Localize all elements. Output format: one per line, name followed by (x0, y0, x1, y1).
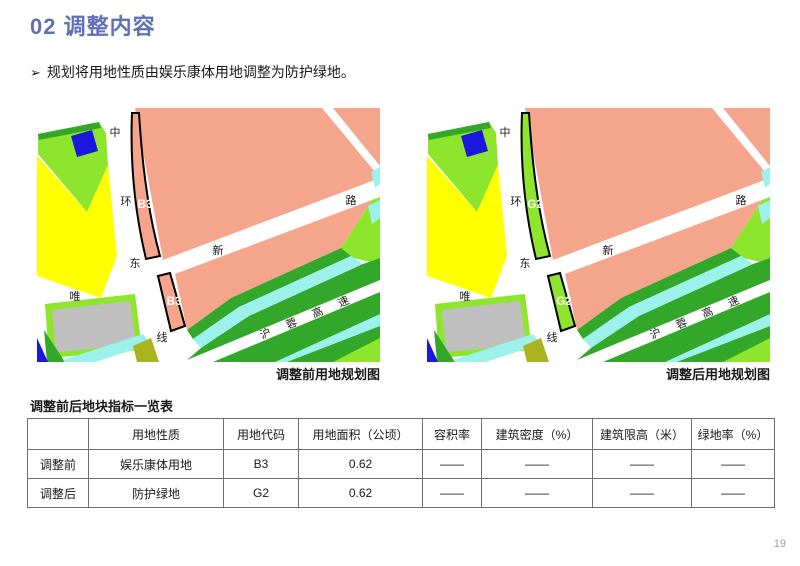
table-cell: 防护绿地 (89, 479, 224, 508)
header-cell: 用地代码 (224, 419, 299, 450)
header-cell: 容积率 (423, 419, 482, 450)
bullet-text: 规划将用地性质由娱乐康体用地调整为防护绿地。 (47, 64, 355, 80)
parcel-code-label: B3 (138, 199, 153, 211)
page-number: 19 (774, 538, 786, 550)
road-label: 中 (110, 126, 121, 139)
land-use-map-after: 中环东线唯新路沪蓉高速G2G2 (425, 108, 770, 362)
table-cell: —— (593, 479, 692, 508)
map-caption-after: 调整后用地规划图 (425, 364, 770, 383)
road-label: 路 (346, 194, 357, 207)
table-row: 调整前娱乐康体用地B30.62———————— (28, 450, 775, 479)
header-cell (28, 419, 89, 450)
table-cell: —— (482, 450, 593, 479)
table-cell: G2 (224, 479, 299, 508)
road-label: 唯 (460, 290, 471, 303)
road-label: 东 (520, 257, 531, 270)
indicator-table: 用地性质用地代码用地面积（公顷）容积率建筑密度（%）建筑限高（米）绿地率（%）调… (27, 418, 775, 508)
road-label: 中 (500, 126, 511, 139)
header-cell: 绿地率（%） (692, 419, 775, 450)
road-label: 环 (511, 196, 522, 208)
parcel-code-label: B3 (167, 296, 182, 308)
table-cell: —— (482, 479, 593, 508)
road-label: 东 (130, 257, 141, 270)
table-cell: —— (423, 479, 482, 508)
bullet-arrow-icon: ➢ (30, 65, 41, 80)
road-label: 唯 (70, 290, 81, 303)
road-label: 新 (603, 243, 614, 257)
page-title: 02 调整内容 (30, 9, 156, 41)
road-label: 线 (157, 330, 168, 344)
table-cell: 娱乐康体用地 (89, 450, 224, 479)
header-cell: 建筑密度（%） (482, 419, 593, 450)
road-label: 环 (121, 196, 132, 208)
bullet-line: ➢规划将用地性质由娱乐康体用地调整为防护绿地。 (30, 62, 355, 82)
table-cell: —— (692, 479, 775, 508)
map-caption-before: 调整前用地规划图 (35, 364, 380, 383)
road-label: 路 (736, 194, 747, 207)
road-label: 线 (547, 330, 558, 344)
table-title: 调整前后地块指标一览表 (30, 396, 173, 415)
map-canvas-after: 中环东线唯新路沪蓉高速G2G2 (425, 108, 770, 362)
header-cell: 用地性质 (89, 419, 224, 450)
table-cell: 0.62 (299, 479, 423, 508)
table-cell: —— (593, 450, 692, 479)
row-label-cell: 调整后 (28, 479, 89, 508)
parcel-code-label: G2 (556, 296, 571, 308)
table-cell: —— (423, 450, 482, 479)
table-row: 调整后防护绿地G20.62———————— (28, 479, 775, 508)
row-label-cell: 调整前 (28, 450, 89, 479)
header-cell: 用地面积（公顷） (299, 419, 423, 450)
road-label: 新 (213, 243, 224, 257)
table-cell: —— (692, 450, 775, 479)
header-cell: 建筑限高（米） (593, 419, 692, 450)
table-cell: 0.62 (299, 450, 423, 479)
table-cell: B3 (224, 450, 299, 479)
map-canvas-before: 中环东线唯新路沪蓉高速B3B3 (35, 108, 380, 362)
table-header-row: 用地性质用地代码用地面积（公顷）容积率建筑密度（%）建筑限高（米）绿地率（%） (28, 419, 775, 450)
land-use-map-before: 中环东线唯新路沪蓉高速B3B3 (35, 108, 380, 362)
parcel-code-label: G2 (527, 199, 542, 211)
